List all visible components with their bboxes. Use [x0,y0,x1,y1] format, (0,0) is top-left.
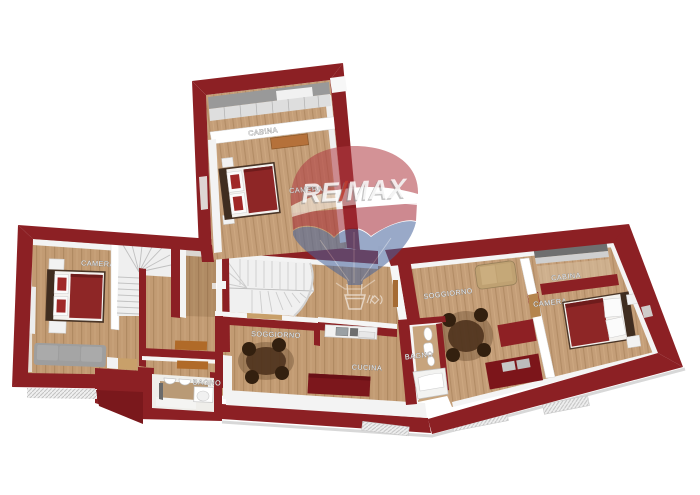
svg-text:BAGNO: BAGNO [193,378,222,388]
svg-text:CAMERA: CAMERA [81,258,115,268]
svg-text:SOGGIORNO: SOGGIORNO [251,329,301,340]
svg-text:CUCINA: CUCINA [352,362,383,372]
